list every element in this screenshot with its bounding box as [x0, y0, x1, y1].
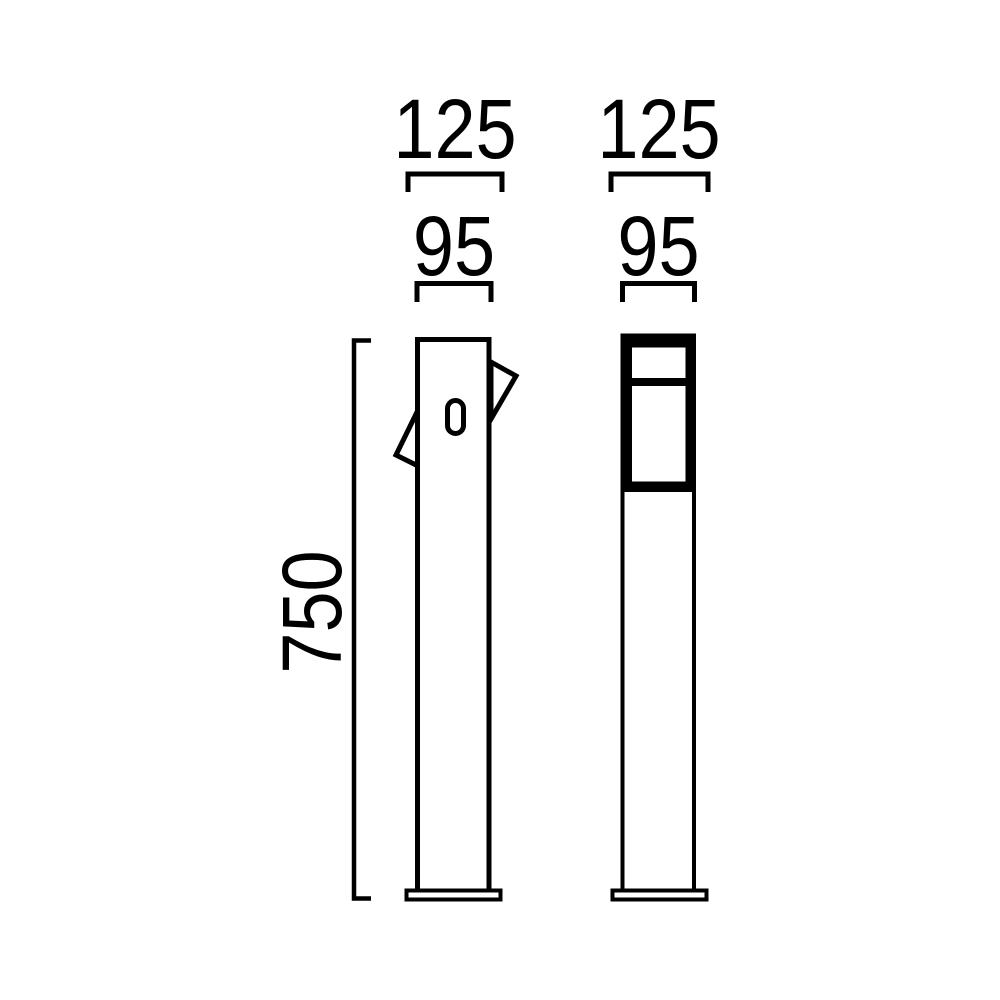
side-sensor-slot	[448, 401, 464, 434]
front-head-top-aperture	[632, 348, 686, 379]
side-right-flap	[491, 362, 516, 419]
side-base-width-label: 125	[393, 82, 516, 176]
drawing-page: 125 95 750 125 95	[0, 0, 1000, 1000]
bollard-dimension-drawing: 125 95 750 125 95	[0, 0, 1000, 1000]
front-head-window	[632, 386, 686, 482]
front-base-plate	[613, 891, 707, 900]
front-post-fill	[623, 490, 695, 890]
front-base-width-bracket	[611, 174, 708, 192]
front-base-width-label: 125	[597, 82, 720, 176]
side-body-width-label: 95	[413, 199, 495, 293]
side-base-width-bracket	[408, 174, 502, 192]
side-base-plate	[407, 891, 501, 900]
side-height-label: 750	[265, 550, 359, 673]
front-body-width-label: 95	[617, 199, 699, 293]
side-view: 125 95 750	[265, 82, 517, 900]
side-left-flap	[396, 410, 418, 466]
front-view: 125 95	[597, 82, 720, 900]
